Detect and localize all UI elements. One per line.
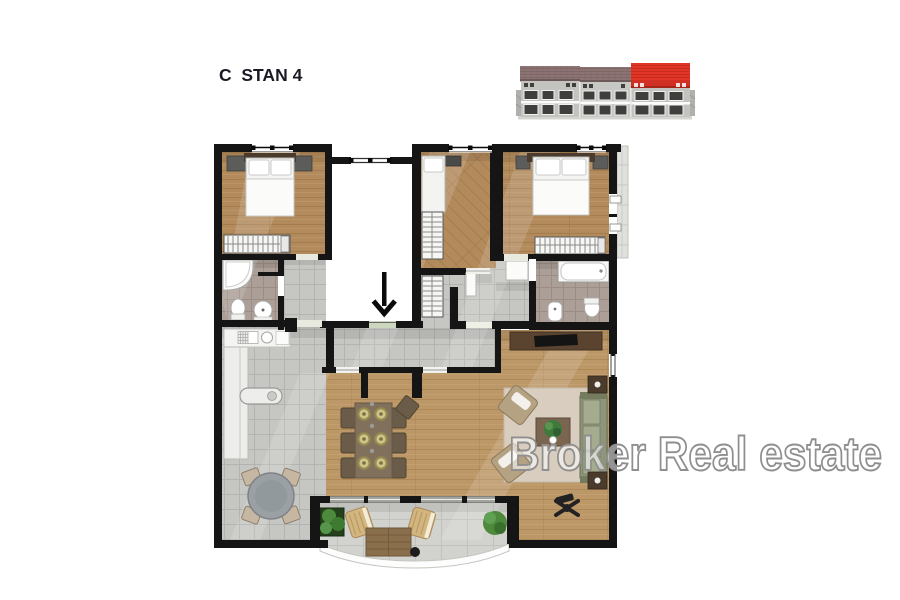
svg-text:C STAN 4: C STAN 4 [219,65,303,85]
svg-text:Broker Real estate: Broker Real estate [509,427,882,480]
